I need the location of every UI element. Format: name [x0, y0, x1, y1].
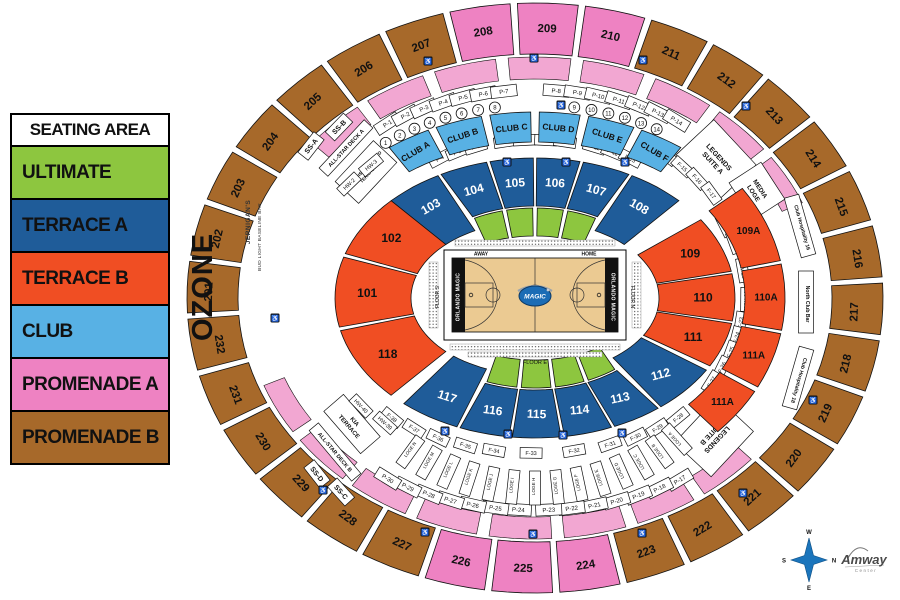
wheelchair-glyph: ♿: [742, 103, 750, 111]
loge-box[interactable]: LOGE J: [482, 466, 500, 502]
wheelchair-glyph: ♿: [503, 159, 511, 167]
amway-center-logo: AmwayCenter: [840, 548, 887, 573]
legend-title: SEATING AREA: [12, 115, 168, 147]
loge-box-label: LOGE H: [531, 478, 536, 495]
venue-name: Amway: [840, 552, 887, 567]
floor-e-label: FLOOR E: [523, 360, 547, 366]
p-row-box-label: P-24: [512, 507, 526, 514]
wheelchair-icon: ♿: [421, 528, 430, 537]
section-105-ultimate-rows[interactable]: [507, 208, 534, 238]
floor-seat-rows: [455, 240, 615, 246]
loge-box[interactable]: LOGE C: [628, 445, 655, 480]
loge-box[interactable]: LOGE I: [506, 469, 520, 504]
circled-number-label: 10: [588, 108, 595, 114]
section-114-ultimate-rows[interactable]: [552, 356, 585, 387]
wheelchair-icon: ♿: [559, 431, 568, 440]
north-club-bar-label: North Club Bar: [804, 286, 810, 323]
legend-item-promenade-b: PROMENADE B: [12, 412, 168, 463]
wheelchair-icon: ♿: [562, 158, 571, 167]
wheelchair-glyph: ♿: [618, 430, 626, 438]
f-row-box: F-30: [623, 427, 647, 446]
section-label: 115: [527, 407, 547, 422]
wheelchair-glyph: ♿: [557, 102, 565, 110]
wheelchair-glyph: ♿: [529, 531, 537, 539]
section-label: 116: [482, 402, 503, 419]
section-label: 114: [569, 402, 590, 418]
section-label: 217: [848, 302, 861, 322]
wheelchair-icon: ♿: [557, 101, 566, 110]
compass-rose: WNSE: [782, 530, 836, 592]
wheelchair-glyph: ♿: [319, 487, 327, 495]
magic-logo: MAGIC: [518, 286, 552, 306]
away-label: AWAY: [474, 252, 489, 258]
floor-s-label: FLOOR S: [435, 285, 441, 308]
legend-item-club: CLUB: [12, 306, 168, 359]
wheelchair-icon: ♿: [529, 530, 538, 539]
loge-box[interactable]: LOGE G: [550, 469, 564, 504]
section-label: 102: [381, 231, 401, 245]
section-label: 111A: [742, 350, 765, 361]
wheelchair-icon: ♿: [530, 54, 539, 63]
loge-box[interactable]: LOGE K: [459, 461, 480, 497]
home-label: HOME: [582, 252, 598, 258]
circled-number: 10: [586, 104, 597, 115]
f-row-box: F-37: [402, 418, 426, 439]
wheelchair-glyph: ♿: [271, 315, 279, 323]
wheelchair-glyph: ♿: [530, 55, 538, 63]
compass-s: S: [782, 559, 786, 565]
p-row-box-label: P-8: [551, 88, 561, 95]
bud-light-baseline-bar-label: BUD LIGHT BASELINE BAR: [257, 203, 263, 271]
wheelchair-icon: ♿: [424, 57, 433, 66]
circled-number: 2: [394, 130, 405, 141]
wheelchair-glyph: ♿: [421, 529, 429, 537]
jernigans-label: JERNIGAN'S: [245, 200, 252, 245]
section-label: 118: [378, 347, 398, 361]
team-name-left: ORLANDO MAGIC: [456, 273, 462, 322]
loge-box[interactable]: LOGE H: [530, 471, 541, 505]
circled-number-label: 14: [653, 127, 660, 133]
circled-number-label: 13: [638, 121, 645, 127]
wheelchair-icon: ♿: [503, 158, 512, 167]
magic-logo-text: MAGIC: [524, 294, 546, 301]
seating-area-legend: SEATING AREA ULTIMATE TERRACE A TERRACE …: [10, 113, 170, 465]
wheelchair-icon: ♿: [618, 429, 627, 438]
wheelchair-glyph: ♿: [638, 530, 646, 538]
wheelchair-icon: ♿: [639, 56, 648, 65]
circled-number-label: 11: [605, 112, 612, 118]
circled-number: 5: [440, 112, 451, 123]
circled-number-label: 12: [622, 116, 629, 122]
floor-seat-rows: [450, 344, 620, 350]
floor-seat-rows: [468, 352, 602, 357]
promenade-a-arc[interactable]: [508, 57, 571, 81]
section-label: 106: [545, 175, 566, 190]
loge-box[interactable]: LOGE L: [437, 454, 461, 490]
section-106-ultimate-rows[interactable]: [537, 208, 564, 238]
f-row-box: F-32: [562, 444, 585, 458]
wheelchair-glyph: ♿: [639, 57, 647, 65]
section-label: 105: [504, 175, 525, 190]
circled-number: 7: [473, 105, 484, 116]
basketball-court: ORLANDO MAGICORLANDO MAGICAWAYHOMEMAGICF…: [429, 240, 641, 366]
p-row-box-label: P-23: [542, 508, 556, 515]
wheelchair-glyph: ♿: [739, 490, 747, 498]
wheelchair-icon: ♿: [638, 529, 647, 538]
legend-item-terrace-b: TERRACE B: [12, 253, 168, 306]
section-label: 109A: [736, 226, 760, 237]
wheelchair-glyph: ♿: [562, 159, 570, 167]
wheelchair-icon: ♿: [621, 158, 630, 167]
circled-number: 4: [424, 117, 435, 128]
f-row-box: F-34: [482, 443, 506, 457]
loge-box-label: LOGE I: [508, 477, 515, 493]
loge-box[interactable]: LOGE N: [396, 435, 425, 469]
wheelchair-icon: ♿: [504, 430, 513, 439]
section-label: 111: [684, 330, 703, 344]
wheelchair-glyph: ♿: [504, 431, 512, 439]
circled-number: 12: [619, 112, 630, 123]
circled-number: 3: [409, 123, 420, 134]
wheelchair-icon: ♿: [319, 486, 328, 495]
ozone-label: OZONE: [185, 251, 221, 341]
section-label: 225: [513, 562, 533, 575]
section-label: 209: [537, 23, 557, 36]
loge-box[interactable]: LOGE E: [590, 461, 611, 497]
circled-number: 9: [569, 102, 580, 113]
section-label: 111A: [711, 397, 734, 408]
circled-number: 14: [651, 124, 662, 135]
section-107-ultimate-rows[interactable]: [562, 211, 596, 243]
loge-box[interactable]: LOGE D: [609, 454, 633, 490]
f-row-box: F-35: [453, 437, 477, 454]
legend-item-ultimate: ULTIMATE: [12, 147, 168, 200]
section-104-ultimate-rows[interactable]: [475, 211, 509, 243]
f-row-box: F-31: [598, 435, 622, 452]
section-label: 110: [693, 290, 713, 304]
circled-number: 8: [489, 102, 500, 113]
legend-item-promenade-a: PROMENADE A: [12, 359, 168, 412]
team-name-right: ORLANDO MAGIC: [610, 273, 616, 322]
f-row-box-label: F-33: [525, 451, 536, 457]
section-116-ultimate-rows[interactable]: [487, 356, 520, 387]
wheelchair-glyph: ♿: [424, 58, 432, 66]
p-row-box-label: P-7: [499, 89, 510, 96]
wheelchair-icon: ♿: [441, 427, 450, 436]
circled-number: 11: [603, 108, 614, 119]
circled-number: 1: [380, 137, 391, 148]
seating-chart: 2072082092102112122132142152162172182192…: [0, 0, 900, 600]
circled-number: 6: [456, 108, 467, 119]
wheelchair-glyph: ♿: [621, 159, 629, 167]
section-label: 109: [680, 247, 700, 261]
wheelchair-icon: ♿: [742, 102, 751, 111]
legend-item-terrace-a: TERRACE A: [12, 200, 168, 253]
wheelchair-icon: ♿: [271, 314, 280, 323]
promenade-a-arc[interactable]: [489, 514, 552, 539]
section-label: 110A: [754, 293, 777, 304]
wheelchair-glyph: ♿: [809, 397, 817, 405]
wheelchair-icon: ♿: [809, 396, 818, 405]
circled-number: 13: [636, 118, 647, 129]
wheelchair-icon: ♿: [739, 489, 748, 498]
compass-e: E: [807, 586, 811, 592]
section-label: 101: [357, 286, 377, 300]
north-club-bar[interactable]: North Club Bar: [799, 271, 814, 333]
compass-w: W: [806, 530, 812, 536]
f-row-box: F-33: [520, 448, 542, 459]
floor-n-label: FLOOR N: [629, 286, 635, 309]
loge-box[interactable]: LOGE F: [570, 466, 588, 502]
wheelchair-glyph: ♿: [441, 428, 449, 436]
venue-sub: Center: [855, 568, 878, 573]
wheelchair-glyph: ♿: [559, 432, 567, 440]
compass-n: N: [832, 559, 836, 565]
loge-box[interactable]: LOGE M: [416, 445, 443, 480]
